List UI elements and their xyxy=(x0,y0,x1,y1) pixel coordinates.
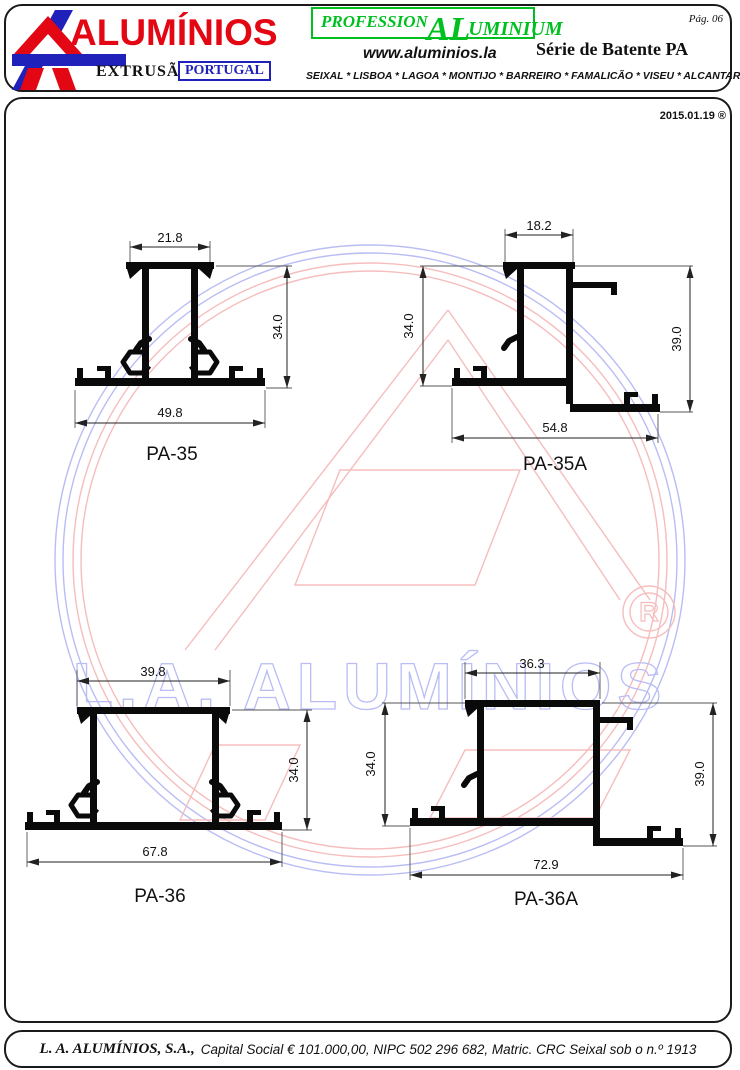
page-number: Pág. 06 xyxy=(689,13,723,25)
pa36-bottom-width-dim: 67.8 xyxy=(142,844,167,859)
professional-prefix: PROFESSION xyxy=(321,12,428,32)
professional-suffix: UMINIUM xyxy=(468,18,562,41)
pa36-label: PA-36 xyxy=(134,886,185,907)
pa35-top-width-dim: 21.8 xyxy=(157,230,182,245)
svg-text:R: R xyxy=(639,597,659,627)
pa35a-bottom-width-dim: 54.8 xyxy=(542,420,567,435)
footer-registration-info: Capital Social € 101.000,00, NIPC 502 29… xyxy=(201,1042,697,1057)
professional-aluminium-logo: PROFESSION AL UMINIUM xyxy=(311,7,535,39)
pa36a-drawing: 36.3 34.0 39.0 72.9 PA-36A xyxy=(362,650,722,915)
pa35-bottom-width-dim: 49.8 xyxy=(157,405,182,420)
pa36-height-dim: 34.0 xyxy=(286,757,301,782)
pa36-dimensions: 39.8 34.0 67.8 xyxy=(27,664,312,867)
pa36-top-width-dim: 39.8 xyxy=(140,664,165,679)
pa36-profile-shape xyxy=(25,707,282,830)
pa35a-height-right-dim: 39.0 xyxy=(669,326,684,351)
pa35-drawing: 21.8 34.0 49.8 PA-35 xyxy=(20,220,320,470)
pa36a-label: PA-36A xyxy=(514,889,578,910)
website-link: www.aluminios.la xyxy=(363,45,497,63)
logo-right-foot xyxy=(52,68,76,90)
brand-name: ALUMÍNIOS xyxy=(70,12,278,54)
pa35-label: PA-35 xyxy=(146,444,197,465)
watermark-registered-icon: R xyxy=(623,586,675,638)
locations-line: SEIXAL * LISBOA * LAGOA * MONTIJO * BARR… xyxy=(306,71,728,82)
pa35a-height-left-dim: 34.0 xyxy=(401,313,416,338)
brand-country-badge: PORTUGAL xyxy=(178,61,271,81)
sheet-date: 2015.01.19 ® xyxy=(660,110,726,122)
pa36a-top-width-dim: 36.3 xyxy=(519,656,544,671)
catalog-page: ALUMÍNIOS EXTRUSÃO PORTUGAL PROFESSION A… xyxy=(0,0,740,1070)
pa36-drawing: 39.8 34.0 67.8 PA-36 xyxy=(10,655,340,915)
pa35-dimensions: 21.8 34.0 49.8 xyxy=(75,230,292,428)
header: ALUMÍNIOS EXTRUSÃO PORTUGAL PROFESSION A… xyxy=(4,4,732,92)
pa35a-top-width-dim: 18.2 xyxy=(526,218,551,233)
pa36a-height-left-dim: 34.0 xyxy=(363,751,378,776)
professional-al: AL xyxy=(427,11,470,49)
pa36a-height-right-dim: 39.0 xyxy=(692,761,707,786)
pa36a-profile-shape xyxy=(410,700,683,846)
pa36a-bottom-width-dim: 72.9 xyxy=(533,857,558,872)
pa35-height-dim: 34.0 xyxy=(270,314,285,339)
series-title: Série de Batente PA xyxy=(536,39,688,60)
footer-company-name: L. A. ALUMÍNIOS, S.A., xyxy=(40,1041,195,1058)
pa35a-drawing: 18.2 34.0 39.0 54.8 PA-35A xyxy=(395,215,715,480)
pa36a-dimensions: 36.3 34.0 39.0 72.9 xyxy=(363,656,717,880)
footer: L. A. ALUMÍNIOS, S.A., Capital Social € … xyxy=(4,1030,732,1068)
pa35a-profile-shape xyxy=(452,262,660,412)
pa35-profile-shape xyxy=(75,262,265,386)
pa35a-label: PA-35A xyxy=(523,454,587,475)
